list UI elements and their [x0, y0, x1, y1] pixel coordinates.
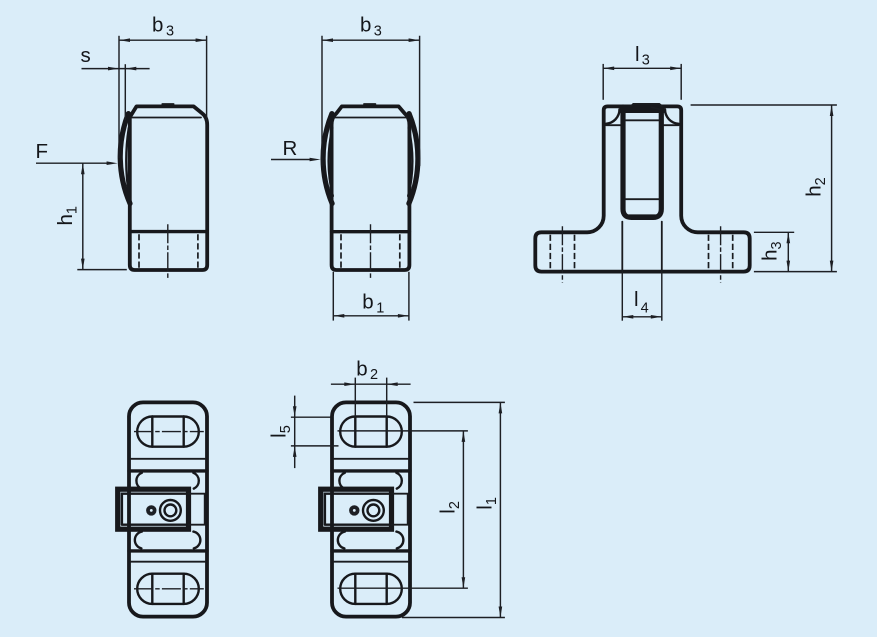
svg-text:h3: h3 [759, 241, 786, 260]
svg-text:1: 1 [376, 300, 384, 316]
svg-text:R: R [283, 137, 298, 160]
svg-text:3: 3 [642, 52, 650, 68]
svg-text:l: l [634, 288, 639, 311]
svg-text:h1: h1 [54, 206, 81, 225]
svg-text:3: 3 [166, 24, 174, 40]
svg-text:4: 4 [641, 300, 649, 316]
svg-text:l5: l5 [267, 425, 294, 438]
svg-text:l2: l2 [436, 501, 463, 514]
svg-text:l1: l1 [473, 497, 500, 510]
svg-text:b: b [152, 14, 163, 37]
svg-text:3: 3 [374, 24, 382, 40]
svg-text:l: l [635, 43, 640, 66]
svg-text:b: b [362, 290, 373, 313]
svg-text:b: b [360, 14, 371, 37]
svg-text:2: 2 [370, 367, 378, 383]
svg-text:h2: h2 [802, 177, 829, 196]
svg-text:b: b [356, 357, 367, 380]
svg-text:s: s [81, 44, 91, 67]
svg-text:F: F [36, 140, 49, 163]
